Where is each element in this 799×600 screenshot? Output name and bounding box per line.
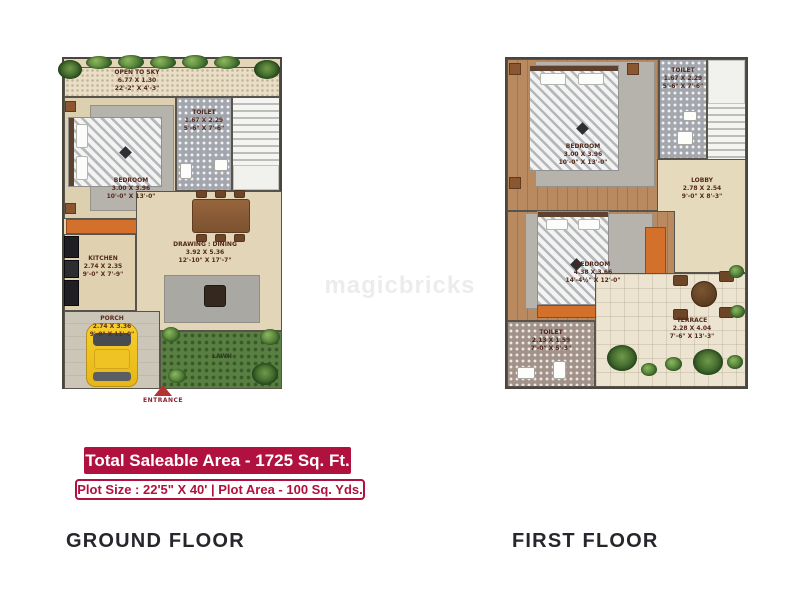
room-dim-ft: 10'-0" X 13'-0"	[559, 159, 608, 167]
room-dim-ft: 5'-6" X 7'-6"	[184, 125, 224, 133]
wardrobe	[537, 305, 597, 318]
room-dim-ft: 14'-4½" X 12'-0"	[566, 277, 621, 285]
chair	[215, 190, 226, 198]
room-name: BEDROOM	[576, 261, 610, 269]
plant	[118, 55, 144, 69]
room-label: DRAWING : DINING 3.92 X 5.36 12'-10" X 1…	[162, 241, 248, 265]
blanket-fold	[576, 122, 589, 135]
room-dim-m: 2.28 X 4.04	[673, 325, 711, 333]
room-dim-m: 6.77 X 1.30	[118, 77, 156, 85]
room-name: LOBBY	[691, 177, 713, 185]
chair	[196, 190, 207, 198]
room-dim-m: 2.74 X 2.35	[84, 263, 122, 271]
room-dim-ft: 7'-0" X 5'-3"	[531, 345, 571, 353]
nightstand	[509, 63, 521, 75]
total-area-banner: Total Saleable Area - 1725 Sq. Ft.	[84, 447, 351, 474]
plant	[168, 369, 186, 383]
plant	[727, 355, 743, 369]
chair	[673, 275, 688, 286]
plant	[665, 357, 682, 371]
terrace-table	[691, 281, 717, 307]
room-dim-m: 2.74 X 3.36	[93, 323, 131, 331]
palm-plant	[58, 60, 82, 79]
room-name: TERRACE	[677, 317, 708, 325]
room-name: PORCH	[100, 315, 124, 323]
room-dim-m: 2.13 X 1.59	[532, 337, 570, 345]
room-label: TERRACE 2.28 X 4.04 7'-6" X 13'-3"	[651, 317, 733, 341]
palm-plant	[607, 345, 637, 371]
room-dim-ft: 22'-2" X 4'-3"	[115, 85, 160, 93]
room-dim-m: 4.38 X 3.66	[574, 269, 612, 277]
room-label: BEDROOM 3.00 X 3.96 10'-0" X 13'-0"	[535, 143, 631, 167]
dining-table	[192, 199, 250, 233]
coffee-table	[204, 285, 226, 307]
room-dim-ft: 10'-0" X 13'-0"	[107, 193, 156, 201]
floor-plan-page: magicbricks OPEN TO SKY 6.77 X 1.30 22'-…	[0, 0, 799, 600]
wc-fixture	[677, 131, 693, 145]
room-name: TOILET	[671, 67, 694, 75]
room-dim-ft: 12'-10" X 17'-7"	[179, 257, 232, 265]
watermark: magicbricks	[285, 272, 515, 300]
plant	[641, 363, 657, 376]
room-name: BEDROOM	[114, 177, 148, 185]
sink-fixture	[683, 111, 697, 121]
counter-appliance	[64, 280, 79, 306]
room-name: LAWN	[212, 353, 232, 361]
pillow	[578, 73, 604, 85]
room-label: OPEN TO SKY 6.77 X 1.30 22'-2" X 4'-3"	[92, 69, 182, 93]
pillow	[578, 219, 600, 230]
room-name: TOILET	[539, 329, 562, 337]
palm-plant	[252, 363, 278, 385]
palm-plant	[693, 349, 723, 375]
room-dim-ft: 5'-6" X 7'-6"	[663, 83, 703, 91]
nightstand	[65, 203, 76, 214]
room-label: PORCH 2.74 X 3.36 9'-0" X 11'-0"	[84, 315, 140, 339]
room-name: BEDROOM	[566, 143, 600, 151]
plant	[182, 55, 208, 69]
stair-landing	[233, 165, 279, 190]
nightstand	[65, 101, 76, 112]
room-label: TOILET 1.67 X 2.29 5'-6" X 7'-6"	[659, 67, 707, 91]
bed-headboard	[69, 118, 74, 186]
plant	[86, 56, 112, 69]
room-label: TOILET 1.67 X 2.29 5'-6" X 7'-6"	[178, 109, 230, 133]
car-roof	[94, 349, 130, 369]
room-dim-ft: 9'-0" X 11'-0"	[90, 331, 135, 339]
ground-floor-title: GROUND FLOOR	[66, 530, 245, 553]
plant	[260, 329, 280, 345]
bed-headboard	[538, 212, 608, 217]
wc-fixture	[553, 361, 566, 379]
bed-headboard	[530, 66, 618, 71]
room-label: BEDROOM 3.00 X 3.96 10'-0" X 13'-0"	[86, 177, 176, 201]
palm-plant	[254, 60, 280, 79]
chair	[234, 190, 245, 198]
pillow	[546, 219, 568, 230]
room-name: TOILET	[192, 109, 215, 117]
sink-fixture	[517, 367, 535, 379]
wc-fixture	[180, 163, 192, 179]
room-label: LOBBY 2.78 X 2.54 9'-0" X 8'-3"	[663, 177, 741, 201]
room-label: TOILET 2.13 X 1.59 7'-0" X 5'-3"	[513, 329, 589, 353]
room-dim-ft: 9'-0" X 8'-3"	[682, 193, 722, 201]
pillow	[540, 73, 566, 85]
room-dim-m: 1.67 X 2.29	[185, 117, 223, 125]
sink-fixture	[214, 159, 228, 171]
room-dim-m: 3.92 X 5.36	[186, 249, 224, 257]
room-dim-ft: 9'-0" X 7'-9"	[83, 271, 123, 279]
pillow	[76, 124, 88, 148]
room-dim-m: 1.67 X 2.29	[664, 75, 702, 83]
ground-floor-plan: OPEN TO SKY 6.77 X 1.30 22'-2" X 4'-3" B…	[62, 57, 282, 389]
plant	[729, 265, 744, 278]
room-dim-ft: 7'-6" X 13'-3"	[670, 333, 715, 341]
room-dim-m: 3.00 X 3.96	[112, 185, 150, 193]
plant	[162, 327, 180, 342]
room-label: KITCHEN 2.74 X 2.35 9'-0" X 7'-9"	[74, 255, 132, 279]
plant	[214, 56, 240, 69]
room-label: BEDROOM 4.38 X 3.66 14'-4½" X 12'-0"	[541, 261, 645, 285]
nightstand	[627, 63, 639, 75]
room-dim-m: 3.00 X 3.96	[564, 151, 602, 159]
room-name: OPEN TO SKY	[114, 69, 159, 77]
plot-info: Plot Size : 22'5" X 40' | Plot Area - 10…	[75, 479, 365, 500]
car-rear-window	[93, 372, 131, 381]
stair-landing	[708, 60, 745, 104]
first-floor-plan: BEDROOM 3.00 X 3.96 10'-0" X 13'-0" TOIL…	[505, 57, 748, 389]
room-label: LAWN	[192, 353, 252, 361]
plant	[150, 56, 176, 69]
nightstand	[509, 177, 521, 189]
room-name: KITCHEN	[88, 255, 118, 263]
first-floor-title: FIRST FLOOR	[512, 530, 659, 553]
entrance-label: ENTRANCE	[140, 397, 186, 404]
blanket-fold	[119, 146, 132, 159]
room-dim-m: 2.78 X 2.54	[683, 185, 721, 193]
room-name: DRAWING : DINING	[173, 241, 237, 249]
